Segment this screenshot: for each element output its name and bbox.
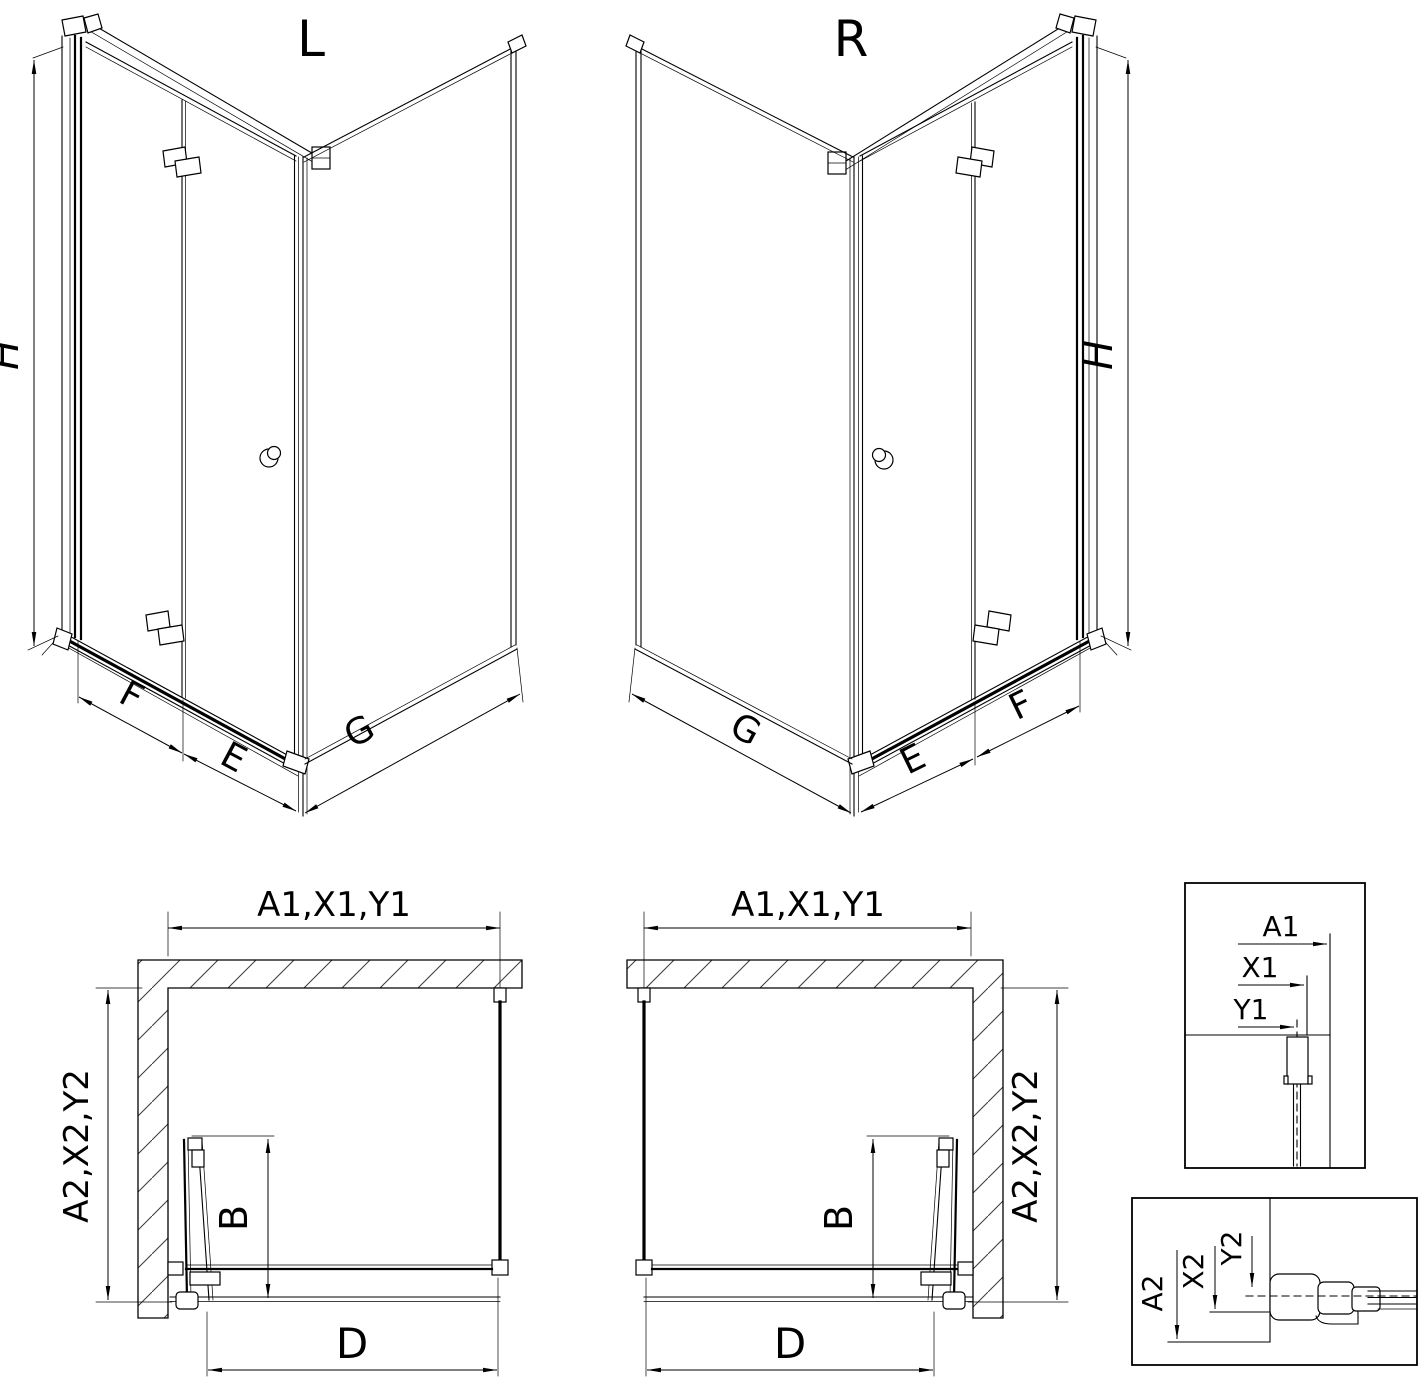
hinge-top-icon [163, 147, 201, 177]
hinge-top-icon [956, 147, 994, 177]
variant-label-left: L [297, 10, 325, 68]
dim-label-x1: X1 [1242, 951, 1279, 984]
dim-label-d-left: D [336, 1319, 368, 1368]
isometric-view-right: R [626, 10, 1131, 816]
isometric-view-left: L [0, 10, 526, 816]
dim-d-right: D [646, 1278, 934, 1376]
dim-label-d-right: D [774, 1319, 806, 1368]
dim-label-a1: A1 [1263, 910, 1300, 943]
side-wall-left [304, 35, 526, 764]
sill-plan [644, 1297, 973, 1302]
dim-label-a2: A2 [1136, 1275, 1169, 1312]
dim-label-e-left: E [214, 734, 253, 781]
dim-label-y1: Y1 [1233, 993, 1269, 1026]
dim-label-e-right: E [894, 736, 932, 783]
dim-d-left: D [207, 1278, 498, 1376]
dim-label-a2-right: A2,X2,Y2 [1006, 1069, 1046, 1223]
door-wall-left [42, 16, 307, 816]
variant-label-right: R [834, 10, 869, 68]
hinge-bottom-icon [973, 611, 1011, 645]
side-glass-plan [636, 988, 652, 1275]
dim-label-f-left: F [113, 673, 151, 719]
technical-drawing-page: L [0, 0, 1426, 1397]
dim-label-h-right: H [1076, 340, 1122, 370]
side-glass-plan [492, 988, 508, 1275]
door-knob-icon [260, 447, 281, 468]
dim-label-a2-left: A2,X2,Y2 [57, 1069, 97, 1223]
dim-label-x2: X2 [1177, 1253, 1210, 1290]
dim-label-h-left: H [0, 340, 28, 370]
plan-view-right: A1,X1,Y1 A2,X2,Y2 [627, 885, 1068, 1376]
dim-height-right: H [1076, 47, 1131, 650]
dim-label-a1-left: A1,X1,Y1 [257, 885, 411, 925]
bottom-sill-right [848, 628, 1106, 776]
side-wall-right [626, 35, 853, 764]
dim-height-left: H [0, 47, 63, 650]
dim-label-f-right: F [1003, 683, 1040, 729]
dim-e-left: E [184, 734, 296, 811]
door-wall-right [850, 16, 1117, 816]
dim-label-y2: Y2 [1215, 1231, 1248, 1267]
door-knob-icon [873, 449, 894, 470]
detail-view-top: A1 X1 Y1 [1185, 883, 1365, 1168]
sill-plan [170, 1297, 500, 1302]
hinge-bottom-icon [146, 611, 184, 645]
dim-label-b-left: B [212, 1205, 256, 1231]
support-bar-icon [84, 14, 330, 169]
dim-g-right: G [629, 648, 851, 813]
dim-label-g-left: G [338, 707, 382, 756]
dim-label-b-right: B [817, 1205, 861, 1231]
folded-door-plan [921, 1138, 965, 1309]
plan-view-left: A1,X1,Y1 A2,X2,Y2 [57, 885, 522, 1376]
dim-g-left: G [305, 648, 523, 813]
dim-label-a1-right: A1,X1,Y1 [731, 885, 885, 925]
dim-e-right: E [861, 736, 973, 812]
bottom-sill-left [53, 628, 309, 776]
detail-view-bottom: A2 X2 Y2 [1132, 1198, 1417, 1365]
